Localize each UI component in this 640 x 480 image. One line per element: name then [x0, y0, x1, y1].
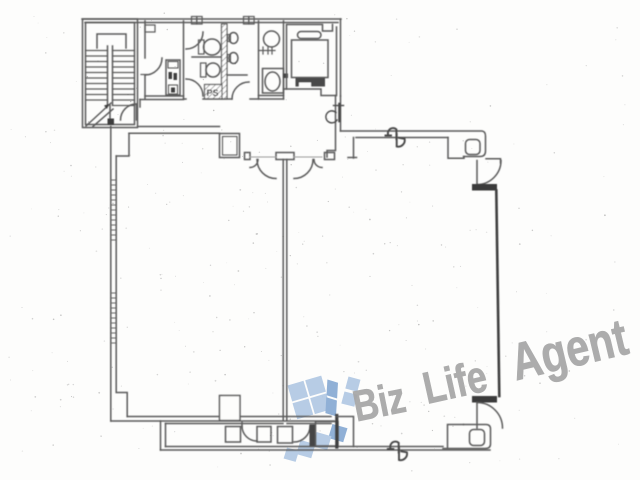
- svg-text:Biz: Biz: [349, 373, 410, 431]
- svg-text:PS: PS: [207, 88, 219, 98]
